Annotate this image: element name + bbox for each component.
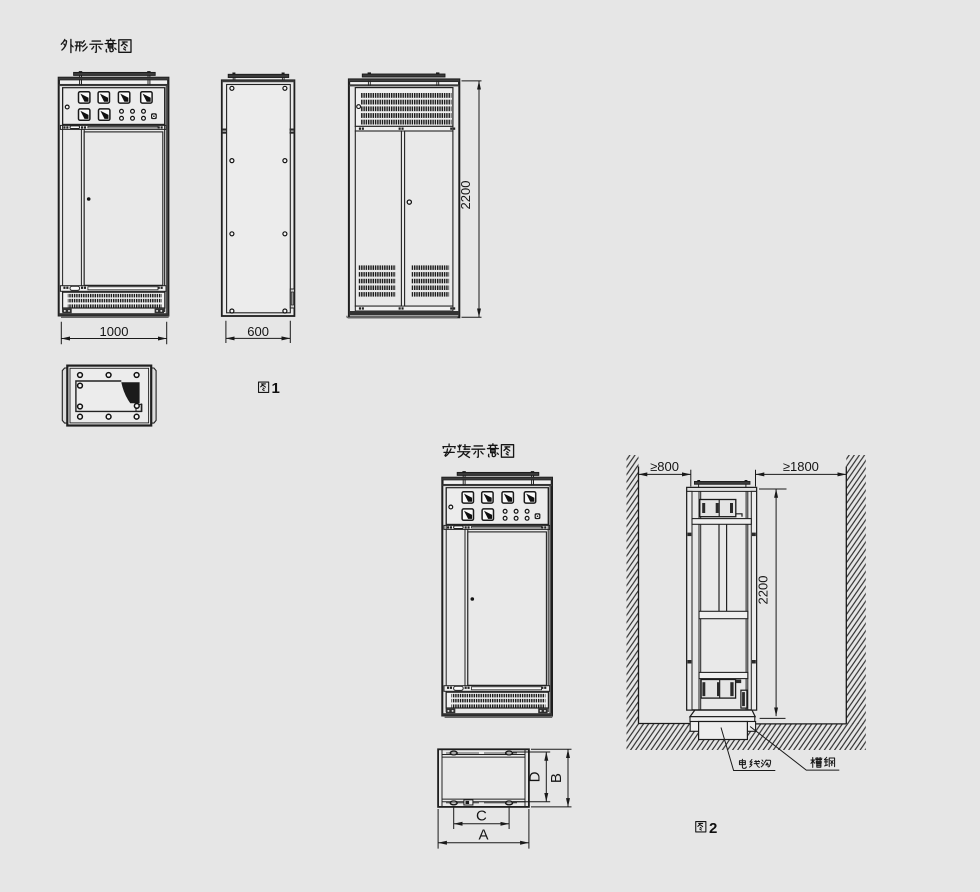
- svg-text:≥800: ≥800: [650, 459, 679, 474]
- svg-text:2200: 2200: [458, 181, 473, 210]
- svg-text:≥1800: ≥1800: [783, 459, 819, 474]
- svg-text:B: B: [548, 773, 565, 783]
- svg-text:1000: 1000: [100, 324, 129, 339]
- svg-text:600: 600: [247, 324, 269, 339]
- svg-text:A: A: [478, 827, 488, 844]
- svg-text:2200: 2200: [756, 576, 771, 605]
- svg-text:D: D: [527, 771, 544, 782]
- svg-text:1: 1: [272, 380, 280, 397]
- svg-text:C: C: [476, 808, 487, 825]
- svg-text:2: 2: [709, 820, 717, 837]
